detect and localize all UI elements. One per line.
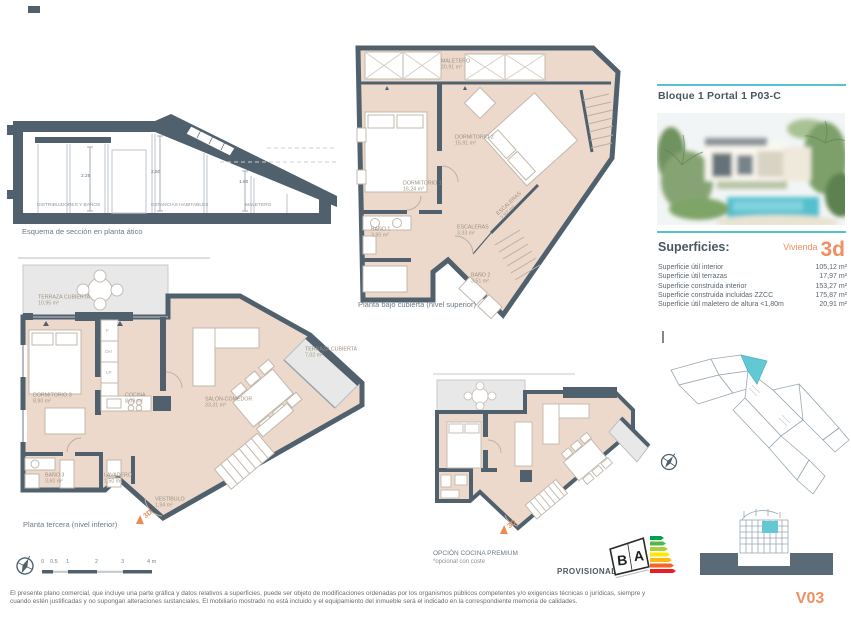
room-label: SALÓN-COMEDOR33,31 m² — [205, 396, 252, 408]
section-caption: Esquema de sección en planta ático — [22, 227, 143, 236]
svg-text:OH: OH — [105, 349, 112, 354]
sheet-edge-mark — [28, 6, 40, 13]
panel-divider-top — [657, 84, 846, 86]
plan-sheet: 2.25 2.50 1.80 DISTRIBUIDORES Y BAÑOS ES… — [0, 0, 851, 625]
room-label: ESCALERAS3,33 m² — [457, 224, 489, 236]
room-label: BAÑO 23,51 m² — [471, 272, 490, 284]
plan-version: V03 — [780, 590, 840, 608]
building-render-image — [657, 113, 845, 225]
compass-icon — [659, 450, 680, 472]
room-label: BAÑO 13,95 m² — [371, 226, 390, 238]
section-svg — [5, 95, 340, 245]
plan-upper-level: MALETERO20,91 m² DORMITORIO 116,24 m² DO… — [345, 40, 635, 330]
room-label: VESTÍBULO1,94 m² — [155, 496, 185, 508]
energy-rating-logo: B A — [605, 533, 680, 579]
table-row: Superficie útil terrazas17,97 m² — [658, 272, 847, 281]
section-zone-label: DISTRIBUIDORES Y BAÑOS — [37, 202, 100, 207]
panel-divider-bottom — [657, 231, 846, 233]
svg-text:2: 2 — [95, 559, 98, 565]
energy-scale-arrows — [650, 536, 676, 573]
room-label: TERRAZA CUBIERTA10,95 m² — [38, 294, 90, 306]
room-label: DORMITORIO 116,24 m² — [403, 180, 442, 192]
svg-text:4 m: 4 m — [147, 559, 157, 565]
vivienda-code: 3d — [820, 238, 845, 261]
room-label: MALETERO20,91 m² — [441, 58, 470, 70]
section-zone-label: MALETERO — [245, 202, 271, 207]
table-row: Superficie útil interior105,12 m² — [658, 263, 847, 272]
unit-title: Bloque 1 Portal 1 P03-C — [658, 90, 781, 102]
elevation-key — [700, 498, 850, 580]
plan-premium-caption: OPCIÓN COCINA PREMIUM — [433, 550, 518, 557]
svg-text:LP: LP — [106, 370, 112, 375]
superficies-table: Superficie útil interior105,12 m² Superf… — [658, 263, 847, 309]
section-height: 2.50 — [151, 169, 160, 174]
arrow-3d-icon — [136, 515, 144, 524]
svg-text:B: B — [616, 552, 627, 569]
table-row: Superficie útil maletero de altura <1,80… — [658, 300, 847, 309]
section-height: 1.80 — [239, 179, 248, 184]
scale-bar: 0 0.5 1 2 3 4 m — [12, 554, 182, 580]
room-label: LAVADERO1,50 m² — [104, 472, 132, 484]
plan-upper-svg — [345, 40, 635, 330]
svg-text:A: A — [633, 547, 644, 564]
room-label: COCINA8,09 m² — [125, 392, 146, 404]
table-row: Superficie construida interior153,27 m² — [658, 282, 847, 291]
section-drawing: 2.25 2.50 1.80 DISTRIBUIDORES Y BAÑOS ES… — [5, 95, 340, 245]
plan-lower-level: F OH LP TERRAZA CUBIERTA10,95 m² DORMITO… — [5, 250, 385, 545]
compass-icon — [14, 554, 37, 577]
svg-text:0.5: 0.5 — [50, 559, 58, 565]
svg-text:1: 1 — [66, 559, 69, 565]
room-label: TERRAZA CUBIERTA7,02 m² — [305, 346, 357, 358]
vivienda-label: Vivienda — [783, 242, 817, 252]
key-plan — [653, 328, 851, 518]
room-label: DORMITORIO 215,91 m² — [455, 134, 494, 146]
room-label: BAÑO 33,60 m² — [45, 472, 64, 484]
section-zone-label: ESTANCIAS HABITABLES — [151, 202, 208, 207]
svg-text:0: 0 — [41, 559, 44, 565]
superficies-heading: Superficies: — [658, 240, 730, 254]
vivienda-tag: Vivienda3d — [725, 238, 845, 262]
svg-text:3: 3 — [121, 559, 124, 565]
plan-lower-caption: Planta tercera (nivel inferior) — [23, 520, 117, 529]
legal-disclaimer: El presente plano comercial, que incluye… — [10, 590, 843, 606]
arrow-3d-icon — [500, 525, 508, 534]
plan-premium-note: *opcional con coste — [433, 559, 485, 565]
svg-text:F: F — [106, 328, 109, 333]
room-label: DORMITORIO 38,90 m² — [33, 392, 72, 404]
table-row: Superficie construida incluidas ZZCC175,… — [658, 291, 847, 300]
section-height: 2.25 — [81, 173, 90, 178]
